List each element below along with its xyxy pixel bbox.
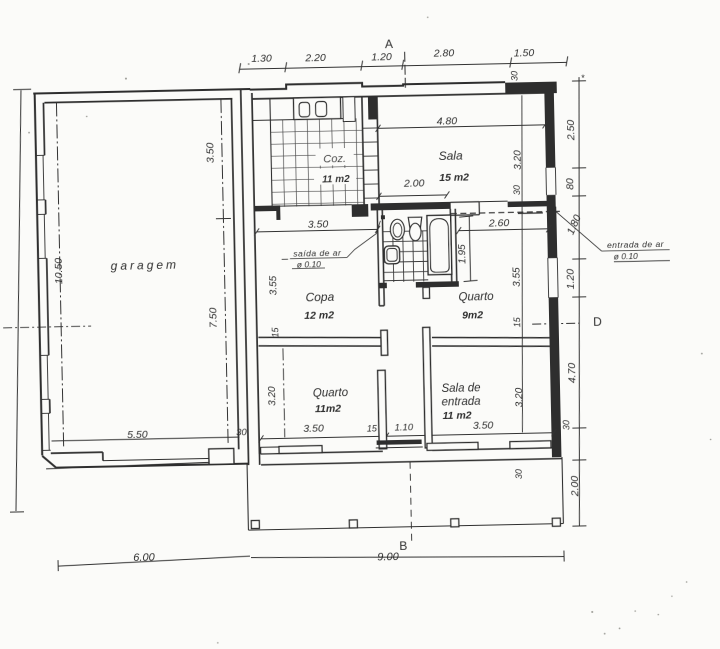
- svg-text:Quarto: Quarto: [458, 291, 494, 304]
- svg-text:7.50: 7.50: [207, 307, 219, 328]
- svg-text:15: 15: [512, 316, 522, 327]
- svg-text:30: 30: [509, 71, 519, 81]
- svg-text:entrada: entrada: [441, 396, 480, 409]
- svg-text:30: 30: [512, 185, 522, 195]
- svg-text:30: 30: [561, 420, 571, 430]
- svg-text:A: A: [385, 37, 393, 51]
- svg-text:2.00: 2.00: [569, 476, 581, 498]
- svg-text:saída de ar: saída de ar: [293, 248, 342, 259]
- svg-text:12 m2: 12 m2: [304, 309, 334, 322]
- svg-text:1.50: 1.50: [514, 47, 535, 59]
- svg-text:80: 80: [564, 178, 576, 190]
- svg-text:3.50: 3.50: [204, 142, 216, 163]
- svg-text:Coz.: Coz.: [323, 153, 346, 165]
- svg-text:2.80: 2.80: [433, 47, 455, 59]
- svg-text:4.70: 4.70: [566, 363, 578, 384]
- svg-text:3.20: 3.20: [514, 387, 525, 407]
- svg-text:11m2: 11m2: [315, 403, 341, 416]
- svg-text:2.20: 2.20: [304, 52, 326, 64]
- svg-text:3.20: 3.20: [512, 150, 523, 170]
- svg-text:Sala: Sala: [438, 149, 463, 164]
- svg-text:1.95: 1.95: [457, 244, 468, 264]
- svg-text:5.50: 5.50: [127, 429, 148, 441]
- svg-text:Copa: Copa: [305, 290, 334, 305]
- svg-text:ø 0.10: ø 0.10: [614, 251, 639, 262]
- svg-text:Sala de: Sala de: [441, 382, 480, 395]
- svg-text:15 m2: 15 m2: [439, 171, 469, 184]
- svg-text:3.50: 3.50: [473, 419, 494, 431]
- svg-text:3.55: 3.55: [268, 275, 279, 295]
- svg-text:30: 30: [236, 427, 248, 438]
- svg-text:30: 30: [514, 469, 524, 479]
- svg-text:10.50: 10.50: [53, 258, 66, 285]
- svg-text:1.30: 1.30: [251, 53, 272, 65]
- svg-text:11 m2: 11 m2: [322, 174, 350, 186]
- svg-text:4.80: 4.80: [437, 115, 458, 127]
- svg-text:B: B: [399, 539, 407, 553]
- svg-text:Quarto: Quarto: [313, 387, 349, 400]
- svg-text:9.00: 9.00: [377, 551, 400, 563]
- svg-text:6.00: 6.00: [133, 552, 156, 564]
- svg-text:entrada de ar: entrada de ar: [607, 239, 665, 250]
- svg-text:D: D: [593, 315, 602, 329]
- svg-text:11 m2: 11 m2: [442, 409, 471, 422]
- svg-text:2.00: 2.00: [403, 177, 425, 189]
- svg-text:3.50: 3.50: [303, 423, 324, 435]
- svg-text:15: 15: [367, 423, 378, 433]
- svg-text:2.60: 2.60: [488, 217, 510, 229]
- svg-text:15: 15: [270, 326, 280, 337]
- svg-text:2.50: 2.50: [565, 119, 577, 141]
- svg-text:3.55: 3.55: [512, 267, 523, 287]
- svg-text:3.20: 3.20: [267, 386, 278, 406]
- svg-text:1.20: 1.20: [371, 51, 392, 63]
- svg-text:garagem: garagem: [111, 258, 180, 273]
- svg-text:1.20: 1.20: [564, 269, 576, 290]
- svg-text:3.50: 3.50: [308, 218, 329, 230]
- svg-text:9m2: 9m2: [462, 309, 483, 321]
- svg-text:1.10: 1.10: [394, 422, 413, 433]
